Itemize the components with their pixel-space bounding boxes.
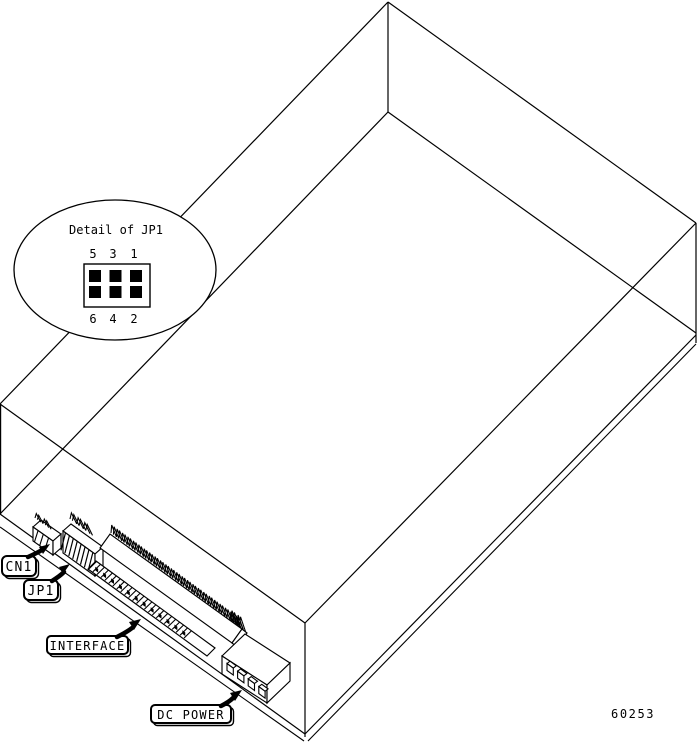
connector-diagram: Detail of JP1 5 3 1 6 4 2 CN1 JP1 INTERF… [0, 0, 697, 743]
leader-arrow [221, 698, 233, 706]
label-text: JP1 [27, 584, 54, 599]
leader-arrow [52, 572, 64, 581]
label-text: INTERFACE [50, 639, 126, 653]
edge-top-back-right [388, 2, 696, 223]
edge-bottom-front-right [305, 335, 696, 734]
jumper-pin-grid [84, 264, 150, 307]
diagram-canvas: Detail of JP1 5 3 1 6 4 2 CN1 JP1 INTERF… [0, 0, 697, 743]
jumper-pin-square [130, 286, 142, 298]
detail-callout: Detail of JP1 5 3 1 6 4 2 [14, 200, 216, 340]
pin-label-1: 1 [130, 247, 137, 261]
callout-title: Detail of JP1 [69, 223, 163, 237]
label-text: CN1 [5, 560, 32, 575]
drawing-number: 60253 [611, 707, 655, 721]
rim-line-right [308, 344, 696, 741]
edge-bottom-back-right [388, 112, 696, 333]
label-text: DC POWER [157, 708, 224, 722]
jumper-pin-square [89, 286, 101, 298]
pin-label-6: 6 [89, 312, 96, 326]
jumper-pin-square [110, 270, 122, 282]
interface-far-pin-row [111, 525, 243, 629]
pin-label-4: 4 [109, 312, 116, 326]
edge-top-back-left [0, 2, 388, 404]
pin-label-3: 3 [109, 247, 116, 261]
pin-label-2: 2 [130, 312, 137, 326]
edge-top-front-right [305, 223, 696, 623]
label-dc-power: DC POWER [151, 690, 242, 726]
label-interface: INTERFACE [47, 619, 141, 657]
jumper-pin-square [130, 270, 142, 282]
pin-label-5: 5 [89, 247, 96, 261]
jumper-pin-square [110, 286, 122, 298]
cn1-connector [33, 514, 61, 555]
device-wireframe [0, 2, 696, 741]
jumper-pin-square [89, 270, 101, 282]
label-cn1: CN1 [2, 544, 50, 579]
